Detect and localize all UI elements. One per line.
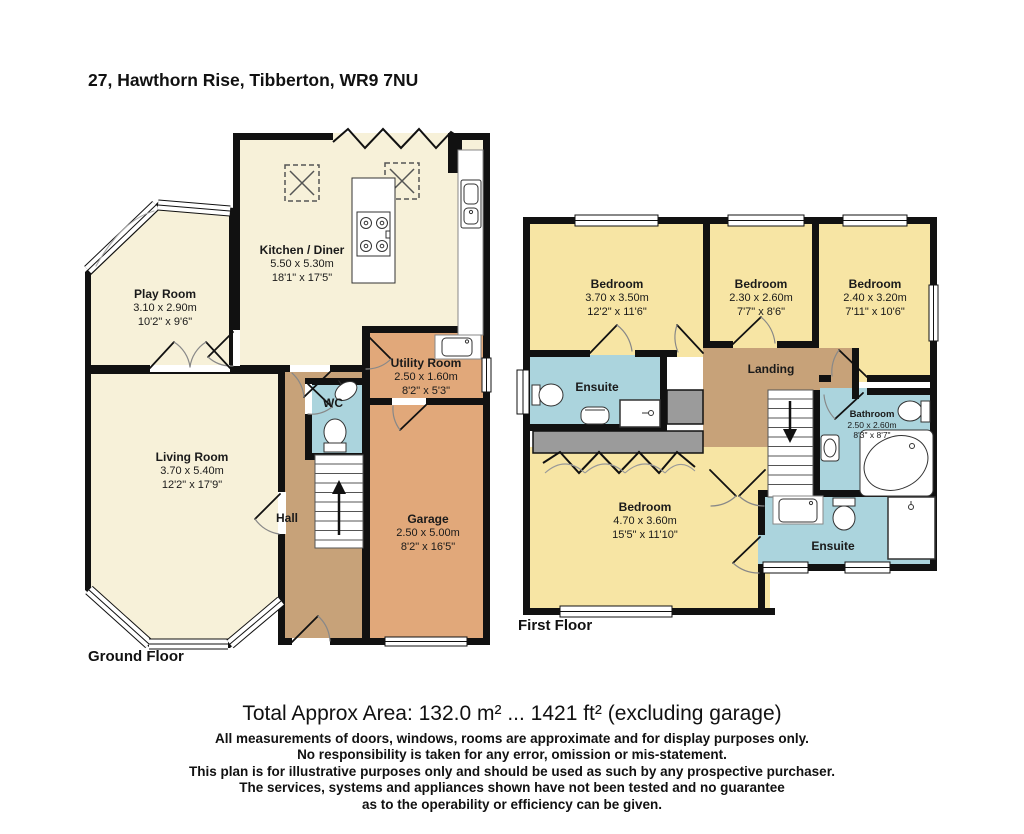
cupboard-block [667, 390, 703, 424]
total-area-text: Total Approx Area: 132.0 m² ... 1421 ft²… [0, 702, 1024, 726]
window-ensuite2-b [845, 562, 890, 573]
window-bedroom3 [843, 215, 907, 226]
room-label-bedroom3: Bedroom 2.40 x 3.20m 7'11" x 10'6" [795, 277, 955, 319]
living-room-area [91, 374, 279, 642]
disclaimer-line: This plan is for illustrative purposes o… [0, 764, 1024, 779]
floorplan-page: 27, Hawthorn Rise, Tibberton, WR9 7NU [0, 0, 1024, 834]
room-label-ensuite2: Ensuite [793, 539, 873, 553]
disclaimer-line: The services, systems and appliances sho… [0, 780, 1024, 795]
toilet-icon [324, 419, 346, 452]
room-label-bedroom4: Bedroom 4.70 x 3.60m 15'5" x 11'10" [565, 500, 725, 542]
room-label-bathroom: Bathroom 2.50 x 2.60m 8'3" x 8'7" [832, 409, 912, 440]
room-label-play-room: Play Room 3.10 x 2.90m 10'2" x 9'6" [85, 287, 245, 329]
kitchen-sink-icon [461, 180, 481, 228]
room-label-bedroom1: Bedroom 3.70 x 3.50m 12'2" x 11'6" [537, 277, 697, 319]
shower-icon [888, 497, 935, 559]
room-label-living-room: Living Room 3.70 x 5.40m 12'2" x 17'9" [112, 450, 272, 492]
wardrobe-block [533, 431, 703, 453]
disclaimer-line: No responsibility is taken for any error… [0, 747, 1024, 762]
garage-door [385, 637, 467, 646]
ground-floor-caption: Ground Floor [88, 648, 184, 665]
window-bedroom4 [560, 606, 672, 617]
room-label-kitchen: Kitchen / Diner 5.50 x 5.30m 18'1" x 17'… [222, 243, 382, 285]
window-ensuite1 [517, 370, 529, 414]
room-label-garage: Garage 2.50 x 5.00m 8'2" x 16'5" [348, 512, 508, 554]
disclaimer-line: as to the operability or efficiency can … [0, 797, 1024, 812]
room-label-landing: Landing [731, 362, 811, 376]
window-bedroom2 [728, 215, 804, 226]
page-title: 27, Hawthorn Rise, Tibberton, WR9 7NU [88, 70, 418, 91]
room-label-hall: Hall [265, 511, 309, 525]
window-ensuite2-a [763, 562, 808, 573]
first-floor-caption: First Floor [518, 617, 592, 634]
kitchen-counter [458, 150, 483, 335]
toilet-icon [833, 498, 855, 530]
sink-icon [581, 407, 609, 424]
stairs-down [768, 390, 813, 497]
shower-icon [620, 400, 660, 427]
room-label-ensuite1: Ensuite [557, 380, 637, 394]
sink-icon [773, 496, 823, 524]
disclaimer-line: All measurements of doors, windows, room… [0, 731, 1024, 746]
window-bedroom1 [575, 215, 658, 226]
room-label-wc: WC [312, 396, 354, 410]
room-label-utility: Utility Room 2.50 x 1.60m 8'2" x 5'3" [347, 356, 505, 398]
